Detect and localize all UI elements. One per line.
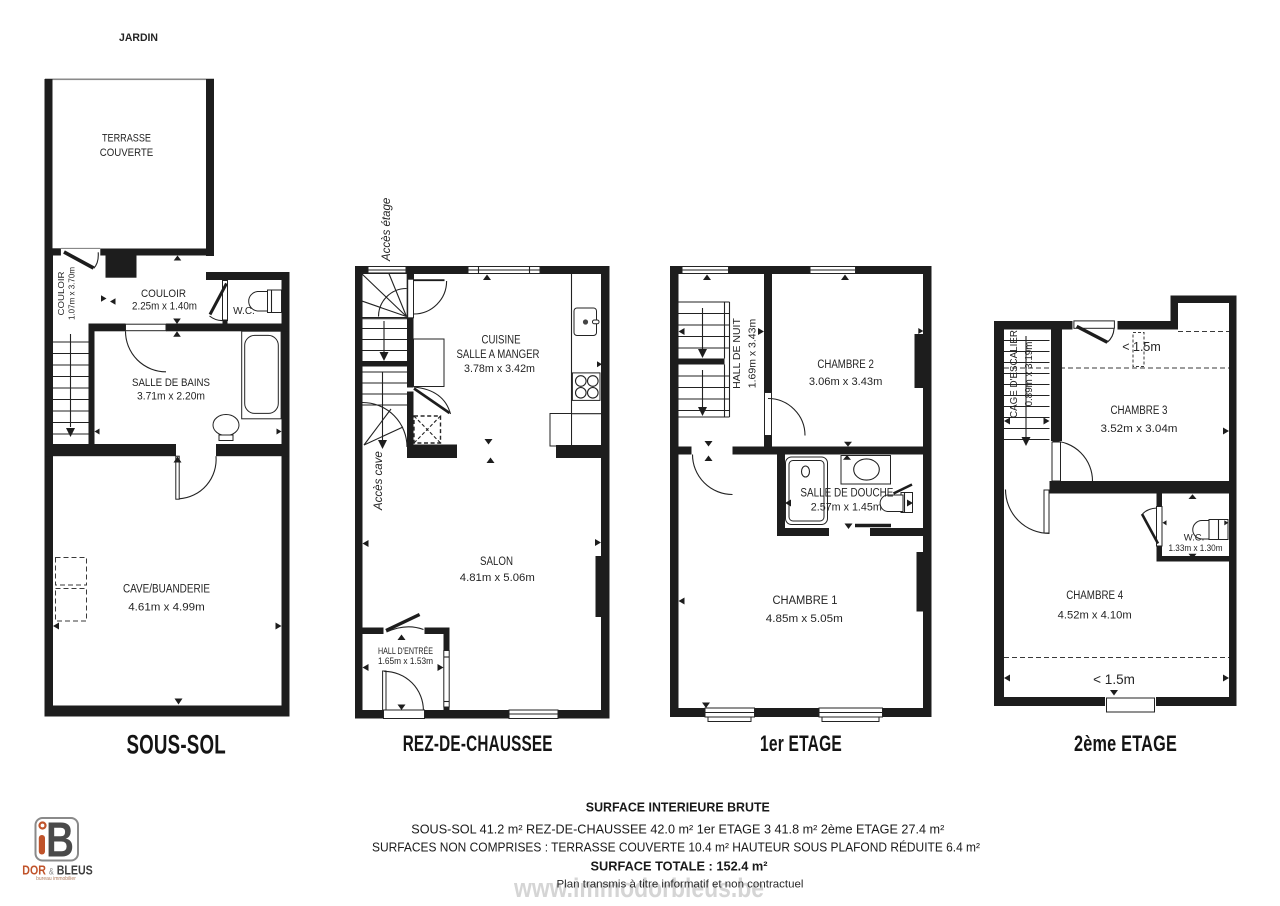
svg-text:3.71m x 2.20m: 3.71m x 2.20m <box>137 391 205 403</box>
svg-text:CAGE D'ESCALIER: CAGE D'ESCALIER <box>1009 330 1020 418</box>
svg-text:SURFACES NON COMPRISES :: SURFACES NON COMPRISES : TERRASSE COUVER… <box>372 840 980 855</box>
svg-text:COULOIR: COULOIR <box>56 272 66 316</box>
svg-text:1.33m x 1.30m: 1.33m x 1.30m <box>1169 543 1223 553</box>
svg-text:REZ-DE-CHAUSSEE: REZ-DE-CHAUSSEE <box>403 731 553 756</box>
svg-text:SALLE DE DOUCHE: SALLE DE DOUCHE <box>800 487 893 499</box>
svg-text:CHAMBRE 4: CHAMBRE 4 <box>1066 590 1124 602</box>
svg-text:COUVERTE: COUVERTE <box>100 147 154 159</box>
svg-text:< 1.5m: < 1.5m <box>1122 340 1161 354</box>
svg-text:Plan transmis à titre informat: Plan transmis à titre informatif et non … <box>557 879 804 891</box>
svg-text:B: B <box>46 814 74 868</box>
svg-text:bureau immobilier: bureau immobilier <box>36 876 76 882</box>
svg-text:SALON: SALON <box>480 556 513 568</box>
svg-text:Accès étage: Accès étage <box>381 198 393 262</box>
svg-text:CHAMBRE 2: CHAMBRE 2 <box>817 359 874 371</box>
svg-text:W.C.: W.C. <box>1184 533 1205 544</box>
svg-text:CUISINE: CUISINE <box>482 335 521 347</box>
svg-text:1er ETAGE: 1er ETAGE <box>760 731 842 756</box>
svg-text:CHAMBRE 3: CHAMBRE 3 <box>1111 405 1168 417</box>
svg-text:< 1.5m: < 1.5m <box>1093 672 1135 687</box>
svg-text:JARDIN: JARDIN <box>119 32 158 44</box>
svg-text:3.06m x 3.43m: 3.06m x 3.43m <box>809 376 883 388</box>
svg-text:4.85m x 5.05m: 4.85m x 5.05m <box>766 613 843 625</box>
svg-text:1.07m x 3.70m: 1.07m x 3.70m <box>67 267 77 320</box>
svg-text:3.78m x 3.42m: 3.78m x 3.42m <box>464 363 535 375</box>
svg-text:SALLE A MANGER: SALLE A MANGER <box>457 349 540 361</box>
svg-text:SURFACE INTERIEURE BRUTE: SURFACE INTERIEURE BRUTE <box>586 800 770 815</box>
svg-text:SURFACE TOTALE : 152.4 m²: SURFACE TOTALE : 152.4 m² <box>591 859 769 874</box>
svg-text:2ème ETAGE: 2ème ETAGE <box>1074 731 1177 756</box>
svg-text:4.52m x 4.10m: 4.52m x 4.10m <box>1058 610 1132 622</box>
svg-text:TERRASSE: TERRASSE <box>102 132 151 144</box>
svg-text:4.81m x 5.06m: 4.81m x 5.06m <box>460 572 535 584</box>
svg-text:SOUS-SOL 41.2 m² REZ-DE-C: SOUS-SOL 41.2 m² REZ-DE-CHAUSSEE 42.0 m²… <box>411 823 944 837</box>
svg-text:1.65m x 1.53m: 1.65m x 1.53m <box>378 656 433 667</box>
svg-text:2.57m x 1.45m: 2.57m x 1.45m <box>811 502 882 514</box>
svg-text:CAVE/BUANDERIE: CAVE/BUANDERIE <box>123 584 210 596</box>
svg-text:COULOIR: COULOIR <box>141 288 186 300</box>
svg-text:SALLE DE BAINS: SALLE DE BAINS <box>132 377 210 389</box>
svg-text:SOUS-SOL: SOUS-SOL <box>126 730 226 760</box>
svg-text:1.69m x 3.43m: 1.69m x 3.43m <box>747 319 759 389</box>
svg-text:CHAMBRE 1: CHAMBRE 1 <box>773 595 838 607</box>
svg-text:HALL DE NUIT: HALL DE NUIT <box>731 318 743 389</box>
svg-text:3.52m x 3.04m: 3.52m x 3.04m <box>1101 423 1178 435</box>
svg-text:4.61m x 4.99m: 4.61m x 4.99m <box>128 602 205 614</box>
svg-text:2.25m x 1.40m: 2.25m x 1.40m <box>132 301 197 313</box>
svg-text:Accès cave: Accès cave <box>373 451 385 511</box>
